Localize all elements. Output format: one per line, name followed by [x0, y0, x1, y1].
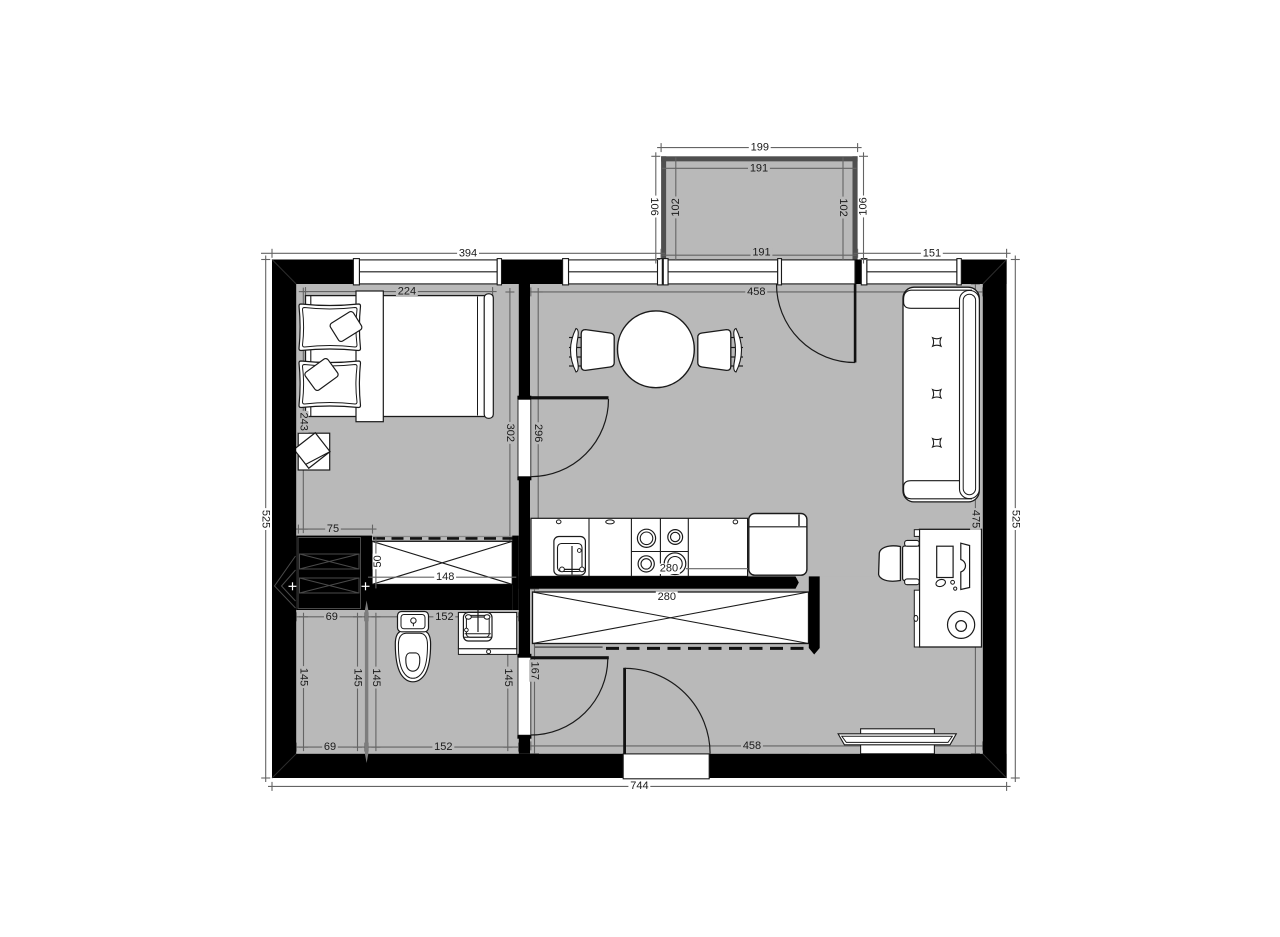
svg-text:145: 145: [502, 668, 514, 686]
svg-text:744: 744: [630, 780, 648, 792]
svg-text:525: 525: [260, 510, 272, 528]
svg-text:69: 69: [326, 611, 338, 623]
svg-text:475: 475: [969, 510, 981, 528]
svg-text:525: 525: [1009, 510, 1021, 528]
svg-text:199: 199: [751, 142, 769, 154]
svg-text:167: 167: [529, 662, 541, 680]
svg-text:75: 75: [327, 523, 339, 535]
svg-text:102: 102: [837, 198, 849, 216]
svg-text:152: 152: [434, 741, 452, 753]
svg-text:151: 151: [923, 247, 941, 259]
svg-text:148: 148: [436, 571, 454, 583]
svg-text:145: 145: [370, 668, 382, 686]
svg-text:296: 296: [532, 424, 544, 442]
svg-text:145: 145: [352, 668, 364, 686]
svg-text:243: 243: [297, 413, 309, 431]
svg-text:458: 458: [747, 286, 765, 298]
svg-text:106: 106: [858, 197, 870, 215]
svg-text:102: 102: [670, 198, 682, 216]
svg-text:145: 145: [298, 668, 310, 686]
svg-text:394: 394: [459, 247, 477, 259]
svg-text:191: 191: [750, 162, 768, 174]
svg-text:302: 302: [504, 424, 516, 442]
svg-text:106: 106: [648, 197, 660, 215]
svg-text:191: 191: [752, 247, 770, 259]
svg-text:50: 50: [372, 555, 384, 567]
svg-text:152: 152: [435, 611, 453, 623]
svg-text:280: 280: [658, 591, 676, 603]
svg-text:224: 224: [398, 286, 416, 298]
svg-text:280: 280: [660, 563, 678, 575]
svg-text:458: 458: [743, 740, 761, 752]
svg-text:69: 69: [324, 741, 336, 753]
